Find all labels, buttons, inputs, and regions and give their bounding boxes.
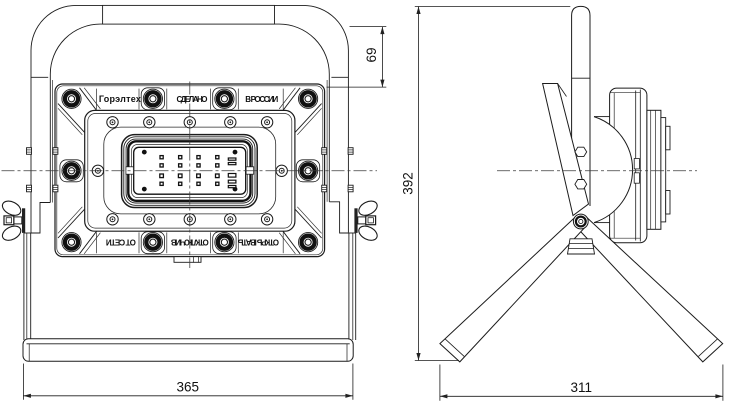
svg-text:В РОССИИ: В РОССИИ [245, 95, 278, 104]
svg-text:365: 365 [177, 379, 200, 394]
svg-text:Горэлтех: Горэлтех [99, 94, 141, 104]
svg-text:392: 392 [401, 172, 416, 195]
svg-text:СДЕЛАНО: СДЕЛАНО [177, 95, 208, 104]
svg-text:69: 69 [364, 47, 379, 62]
svg-text:ОТКРЫВАТЬ: ОТКРЫВАТЬ [238, 238, 279, 247]
svg-text:311: 311 [571, 380, 593, 395]
svg-text:ОТ СЕТИ: ОТ СЕТИ [106, 238, 136, 247]
